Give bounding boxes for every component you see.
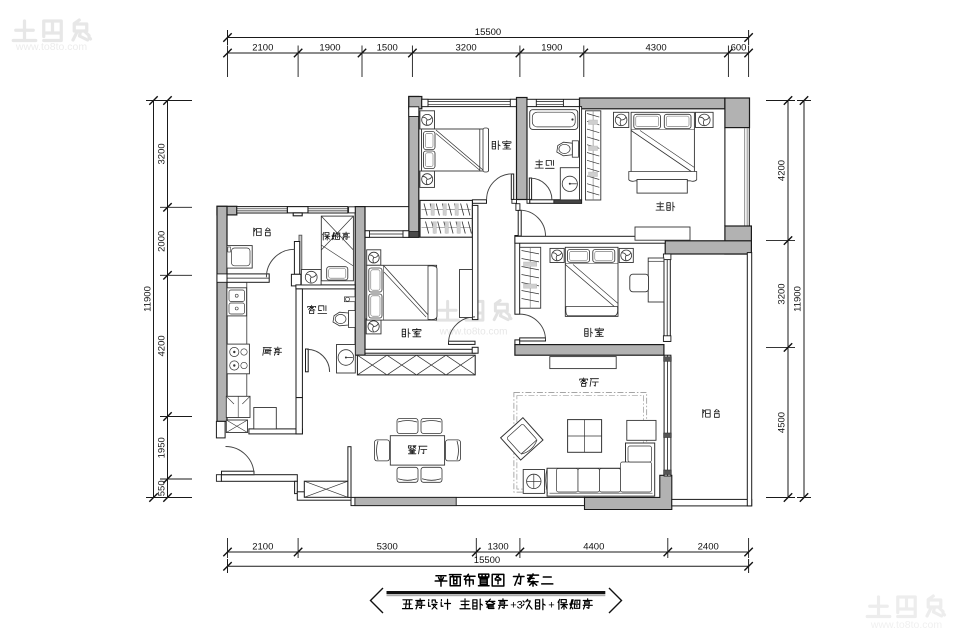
svg-text:3200: 3200 [157,143,168,164]
svg-text:+: + [548,600,554,612]
svg-text:4400: 4400 [583,542,604,553]
svg-text:3200: 3200 [777,283,788,304]
svg-text:3200: 3200 [456,43,477,54]
svg-text:1900: 1900 [319,43,340,54]
svg-text:600: 600 [731,43,747,54]
svg-text:www.to8to.com: www.to8to.com [439,327,508,338]
svg-text:15500: 15500 [475,27,501,38]
svg-text:2000: 2000 [157,231,168,252]
svg-text:4300: 4300 [646,43,667,54]
svg-text:www.to8to.com: www.to8to.com [15,41,87,53]
svg-text:11900: 11900 [143,286,154,312]
svg-text:4500: 4500 [777,412,788,433]
svg-text:+3: +3 [510,600,523,612]
svg-text:550: 550 [157,480,168,496]
svg-text:2100: 2100 [252,43,273,54]
svg-text:4200: 4200 [777,160,788,181]
svg-text:5300: 5300 [377,542,398,553]
svg-text:4200: 4200 [157,335,168,356]
svg-text:2100: 2100 [252,542,273,553]
svg-text:2400: 2400 [698,542,719,553]
svg-text:11900: 11900 [793,286,804,312]
svg-text:1300: 1300 [488,542,509,553]
svg-text:1500: 1500 [377,43,398,54]
svg-text:15500: 15500 [474,555,500,566]
svg-text:www.to8to.com: www.to8to.com [870,619,942,631]
svg-text:1950: 1950 [157,437,168,458]
svg-text:1900: 1900 [541,43,562,54]
